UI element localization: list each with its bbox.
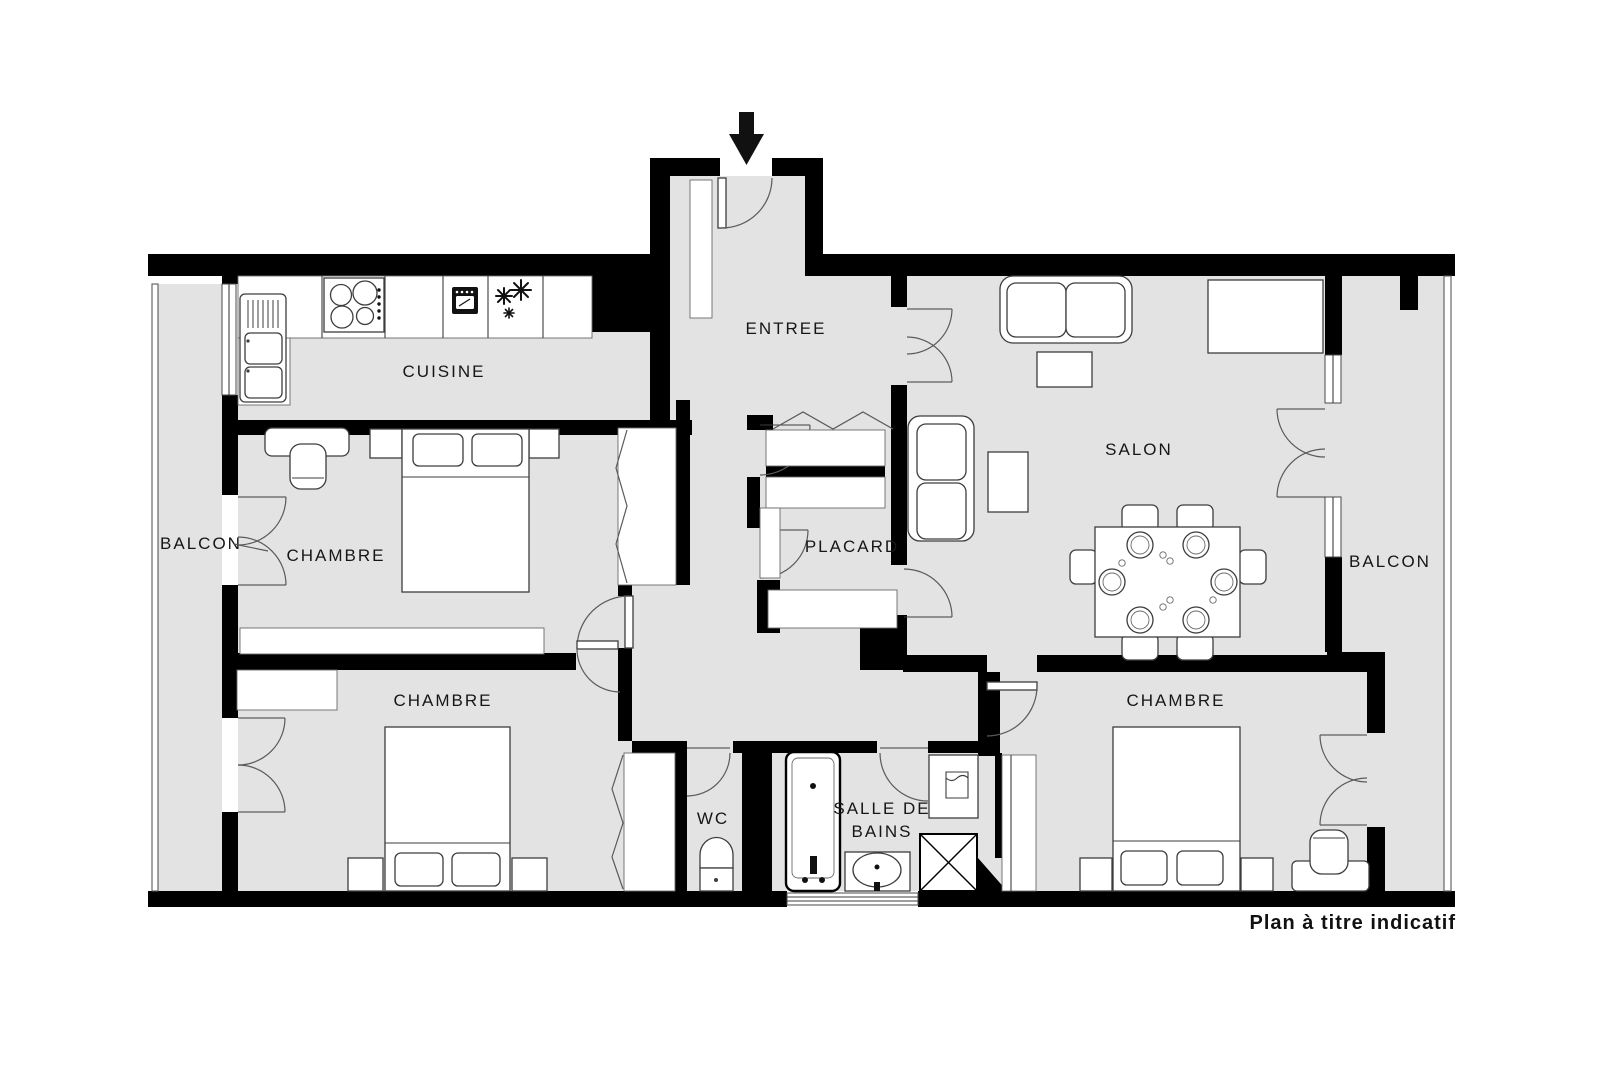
label-chambre-top-left: CHAMBRE (286, 546, 385, 565)
toilet-icon (700, 837, 733, 891)
closet (240, 628, 544, 654)
bed (385, 727, 510, 891)
closet (237, 670, 337, 710)
label-wc: WC (697, 809, 729, 828)
label-salle-de-bains-line2: BAINS (851, 822, 912, 841)
label-salon: SALON (1105, 440, 1173, 459)
entrance-arrow-icon (729, 112, 764, 165)
salon-window-upper (1325, 355, 1341, 403)
bathroom-cabinet (929, 755, 978, 818)
label-placard: PLACARD (805, 537, 899, 556)
nightstand (529, 429, 559, 458)
label-balcon-left: BALCON (160, 534, 242, 553)
label-chambre-bottom-left: CHAMBRE (393, 691, 492, 710)
dining-chair (1122, 634, 1158, 660)
placard-shelf-middle (766, 477, 885, 508)
wc-fixtures (700, 837, 733, 891)
dining-table-set (1070, 505, 1266, 660)
placard-shelf-top (766, 430, 885, 466)
dining-chair (1070, 550, 1097, 584)
tv-cabinet (1208, 280, 1323, 353)
label-balcon-right: BALCON (1349, 552, 1431, 571)
bed (1113, 727, 1240, 891)
coffee-table (1037, 352, 1092, 387)
balcony-right-railing (1444, 276, 1451, 891)
label-chambre-bottom-right: CHAMBRE (1126, 691, 1225, 710)
entry-closet (690, 180, 712, 318)
stove-icon (324, 278, 384, 332)
desk-chair (1310, 830, 1348, 874)
nightstand (1241, 858, 1273, 891)
label-entree: ENTREE (746, 319, 827, 338)
balcony-left-floor (152, 284, 222, 891)
washing-machine-icon (920, 834, 977, 891)
side-table (988, 452, 1028, 512)
washbasin-icon (845, 852, 910, 891)
wardrobe (1002, 755, 1036, 891)
bathroom-window (787, 893, 918, 905)
bathtub-icon (786, 752, 840, 891)
floor-plan-page: CUISINE ENTREE SALON BALCON CHAMBRE PLAC… (0, 0, 1620, 1080)
oven-icon (452, 287, 478, 314)
plan-disclaimer: Plan à titre indicatif (1250, 912, 1456, 934)
desk-chair (290, 444, 326, 489)
wardrobe (616, 428, 676, 585)
dining-chair (1177, 634, 1213, 660)
salon-window-lower (1325, 497, 1341, 557)
label-cuisine: CUISINE (403, 362, 486, 381)
sink-icon (240, 294, 286, 402)
label-salle-de-bains-line1: SALLE DE (833, 799, 930, 818)
kitchen-window (222, 284, 236, 395)
bed (402, 429, 529, 592)
sofa (1000, 276, 1132, 343)
kitchen-counter (238, 276, 592, 338)
balcony-left-railing (152, 284, 158, 891)
nightstand (370, 429, 402, 458)
loveseat (908, 416, 974, 541)
floor-plan: CUISINE ENTREE SALON BALCON CHAMBRE PLAC… (0, 0, 1620, 1080)
nightstand (1080, 858, 1112, 891)
dining-chair (1239, 550, 1266, 584)
placard-shelf-side (760, 508, 780, 578)
nightstand (348, 858, 383, 891)
corridor-cabinet (768, 590, 897, 628)
nightstand (512, 858, 547, 891)
